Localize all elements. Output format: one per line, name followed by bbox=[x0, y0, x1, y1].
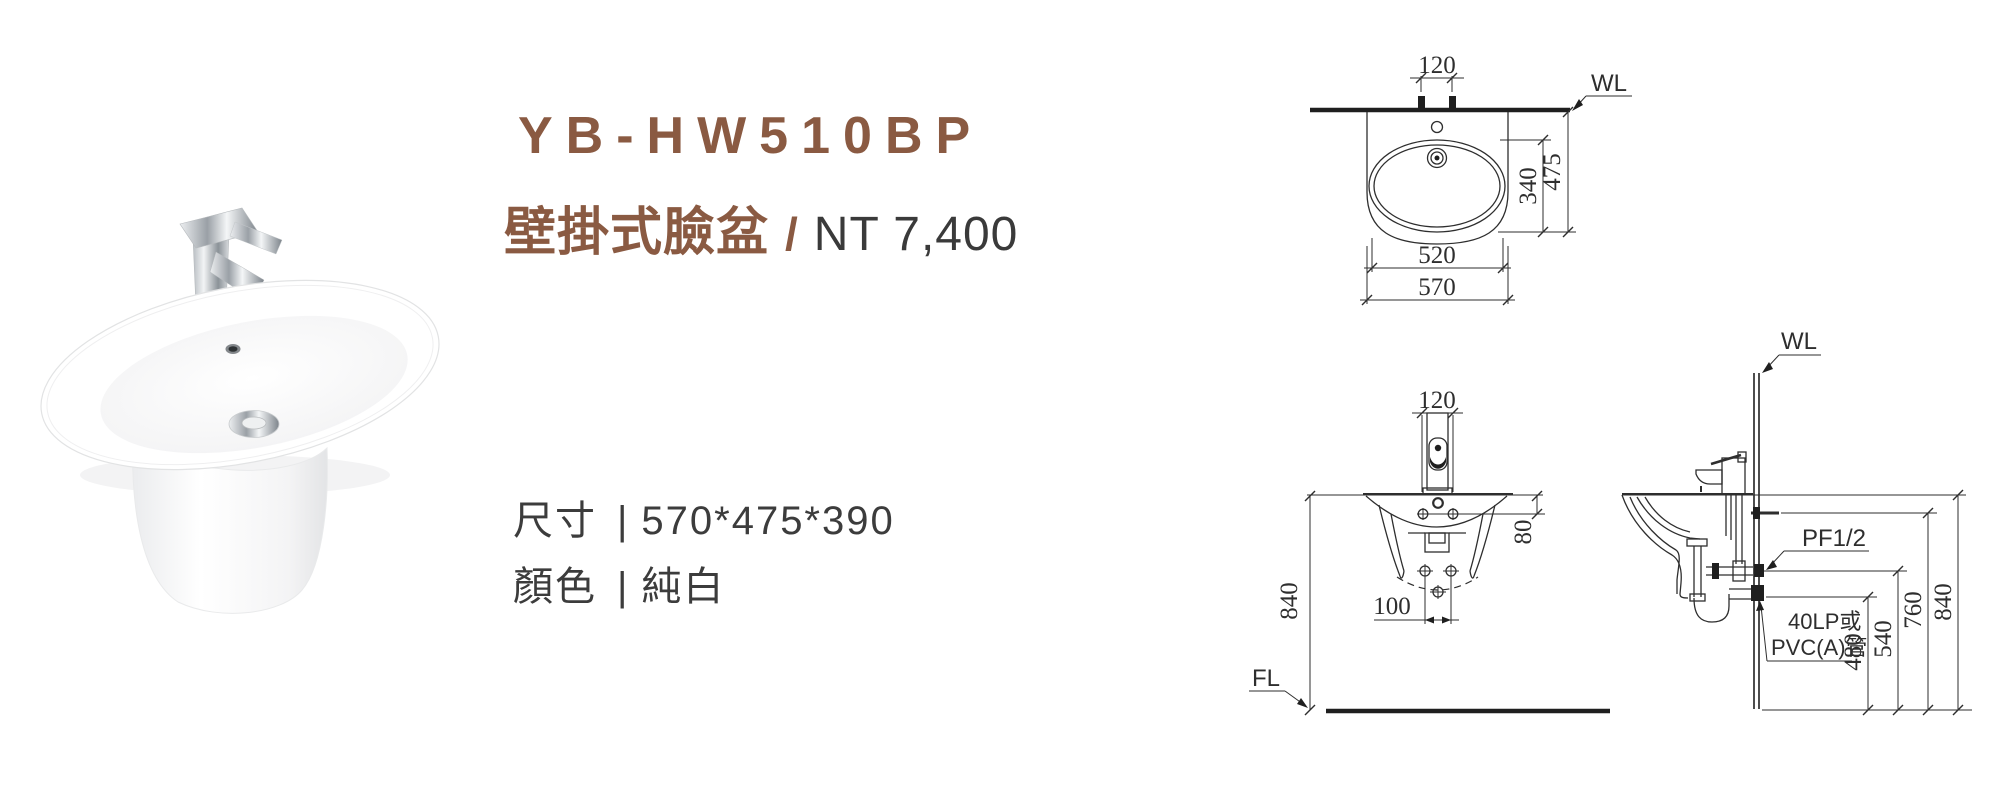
plan-wall-line-label: WL bbox=[1591, 70, 1627, 97]
side-dim-drain-height: 480 bbox=[1840, 633, 1867, 671]
plan-dim-bowl-depth: 340 bbox=[1515, 167, 1542, 205]
spec-row-size: 尺寸 | 570*475*390 bbox=[513, 488, 895, 546]
subtitle-separator: / bbox=[785, 207, 798, 261]
side-drain-trap bbox=[1690, 546, 1764, 622]
side-view-drawing: WL bbox=[1622, 328, 1972, 715]
front-dim-faucet-spacing: 120 bbox=[1418, 387, 1456, 414]
side-pvc-arrow bbox=[1756, 601, 1764, 611]
plan-bowl-outer bbox=[1369, 140, 1505, 232]
side-pf-arrow bbox=[1766, 560, 1777, 570]
front-view-drawing: 120 bbox=[1249, 387, 1610, 715]
side-dim-anchor-height: 760 bbox=[1900, 591, 1927, 629]
plan-wall-bolt-right bbox=[1449, 96, 1456, 110]
side-supply-spec-label: PF1/2 bbox=[1802, 525, 1866, 552]
plan-faucet-hole bbox=[1432, 122, 1443, 133]
front-floor-line-label: FL bbox=[1252, 665, 1280, 692]
front-faucet bbox=[1423, 413, 1452, 494]
front-overflow-hole bbox=[1433, 498, 1443, 508]
technical-drawings: 120 WL 340 475 520 bbox=[1230, 30, 1990, 780]
side-basin-profile bbox=[1622, 494, 1753, 598]
basin-image bbox=[30, 250, 450, 613]
product-category: 壁掛式臉盆 bbox=[504, 190, 769, 265]
plan-drain bbox=[1428, 149, 1447, 168]
product-subtitle: 壁掛式臉盆 / NT 7,400 bbox=[504, 190, 1018, 265]
side-supply-wall-fitting bbox=[1754, 564, 1764, 577]
side-faucet bbox=[1696, 452, 1746, 494]
front-anchor-holes-lower bbox=[1417, 566, 1459, 599]
product-price: NT 7,400 bbox=[814, 207, 1019, 262]
side-drain-wall-fitting bbox=[1751, 585, 1764, 601]
front-dim-rim-height: 840 bbox=[1276, 582, 1303, 620]
side-drain-note-line1: 40LP或 bbox=[1788, 609, 1861, 634]
plan-view-drawing: 120 WL 340 475 520 bbox=[1310, 52, 1632, 305]
front-fl-arrow bbox=[1297, 698, 1308, 708]
spec-size-value: 570*475*390 bbox=[641, 499, 894, 544]
plan-wall-bolt-left bbox=[1418, 96, 1425, 110]
front-basin-body bbox=[1366, 496, 1507, 590]
spec-color-value: 純白 bbox=[641, 554, 725, 612]
plan-basin-outline bbox=[1367, 112, 1508, 244]
spec-row-color: 顏色 | 純白 bbox=[513, 554, 725, 612]
plan-dim-bowl-width: 520 bbox=[1418, 242, 1456, 269]
front-dim-anchor-spacing: 100 bbox=[1373, 593, 1411, 620]
spec-size-divider: | bbox=[617, 499, 627, 544]
spec-color-divider: | bbox=[617, 565, 627, 610]
side-mounting-bolt bbox=[1751, 507, 1779, 519]
product-photo bbox=[30, 140, 450, 620]
spec-size-label: 尺寸 bbox=[513, 488, 617, 546]
catalog-page: YB-HW510BP 壁掛式臉盆 / NT 7,400 尺寸 | 570*475… bbox=[0, 0, 2000, 810]
side-dim-rim-height: 840 bbox=[1930, 583, 1957, 621]
spec-color-label: 顏色 bbox=[513, 554, 617, 612]
plan-dim-overall-width: 570 bbox=[1418, 274, 1456, 301]
plan-dim-overall-depth: 475 bbox=[1539, 153, 1566, 191]
plan-dim-faucet-spacing: 120 bbox=[1418, 52, 1456, 79]
side-wall-line-label: WL bbox=[1781, 328, 1817, 355]
product-model-title: YB-HW510BP bbox=[518, 106, 983, 166]
side-dim-supply-height: 540 bbox=[1870, 620, 1897, 658]
front-dim-rim-to-holes: 80 bbox=[1510, 520, 1537, 545]
